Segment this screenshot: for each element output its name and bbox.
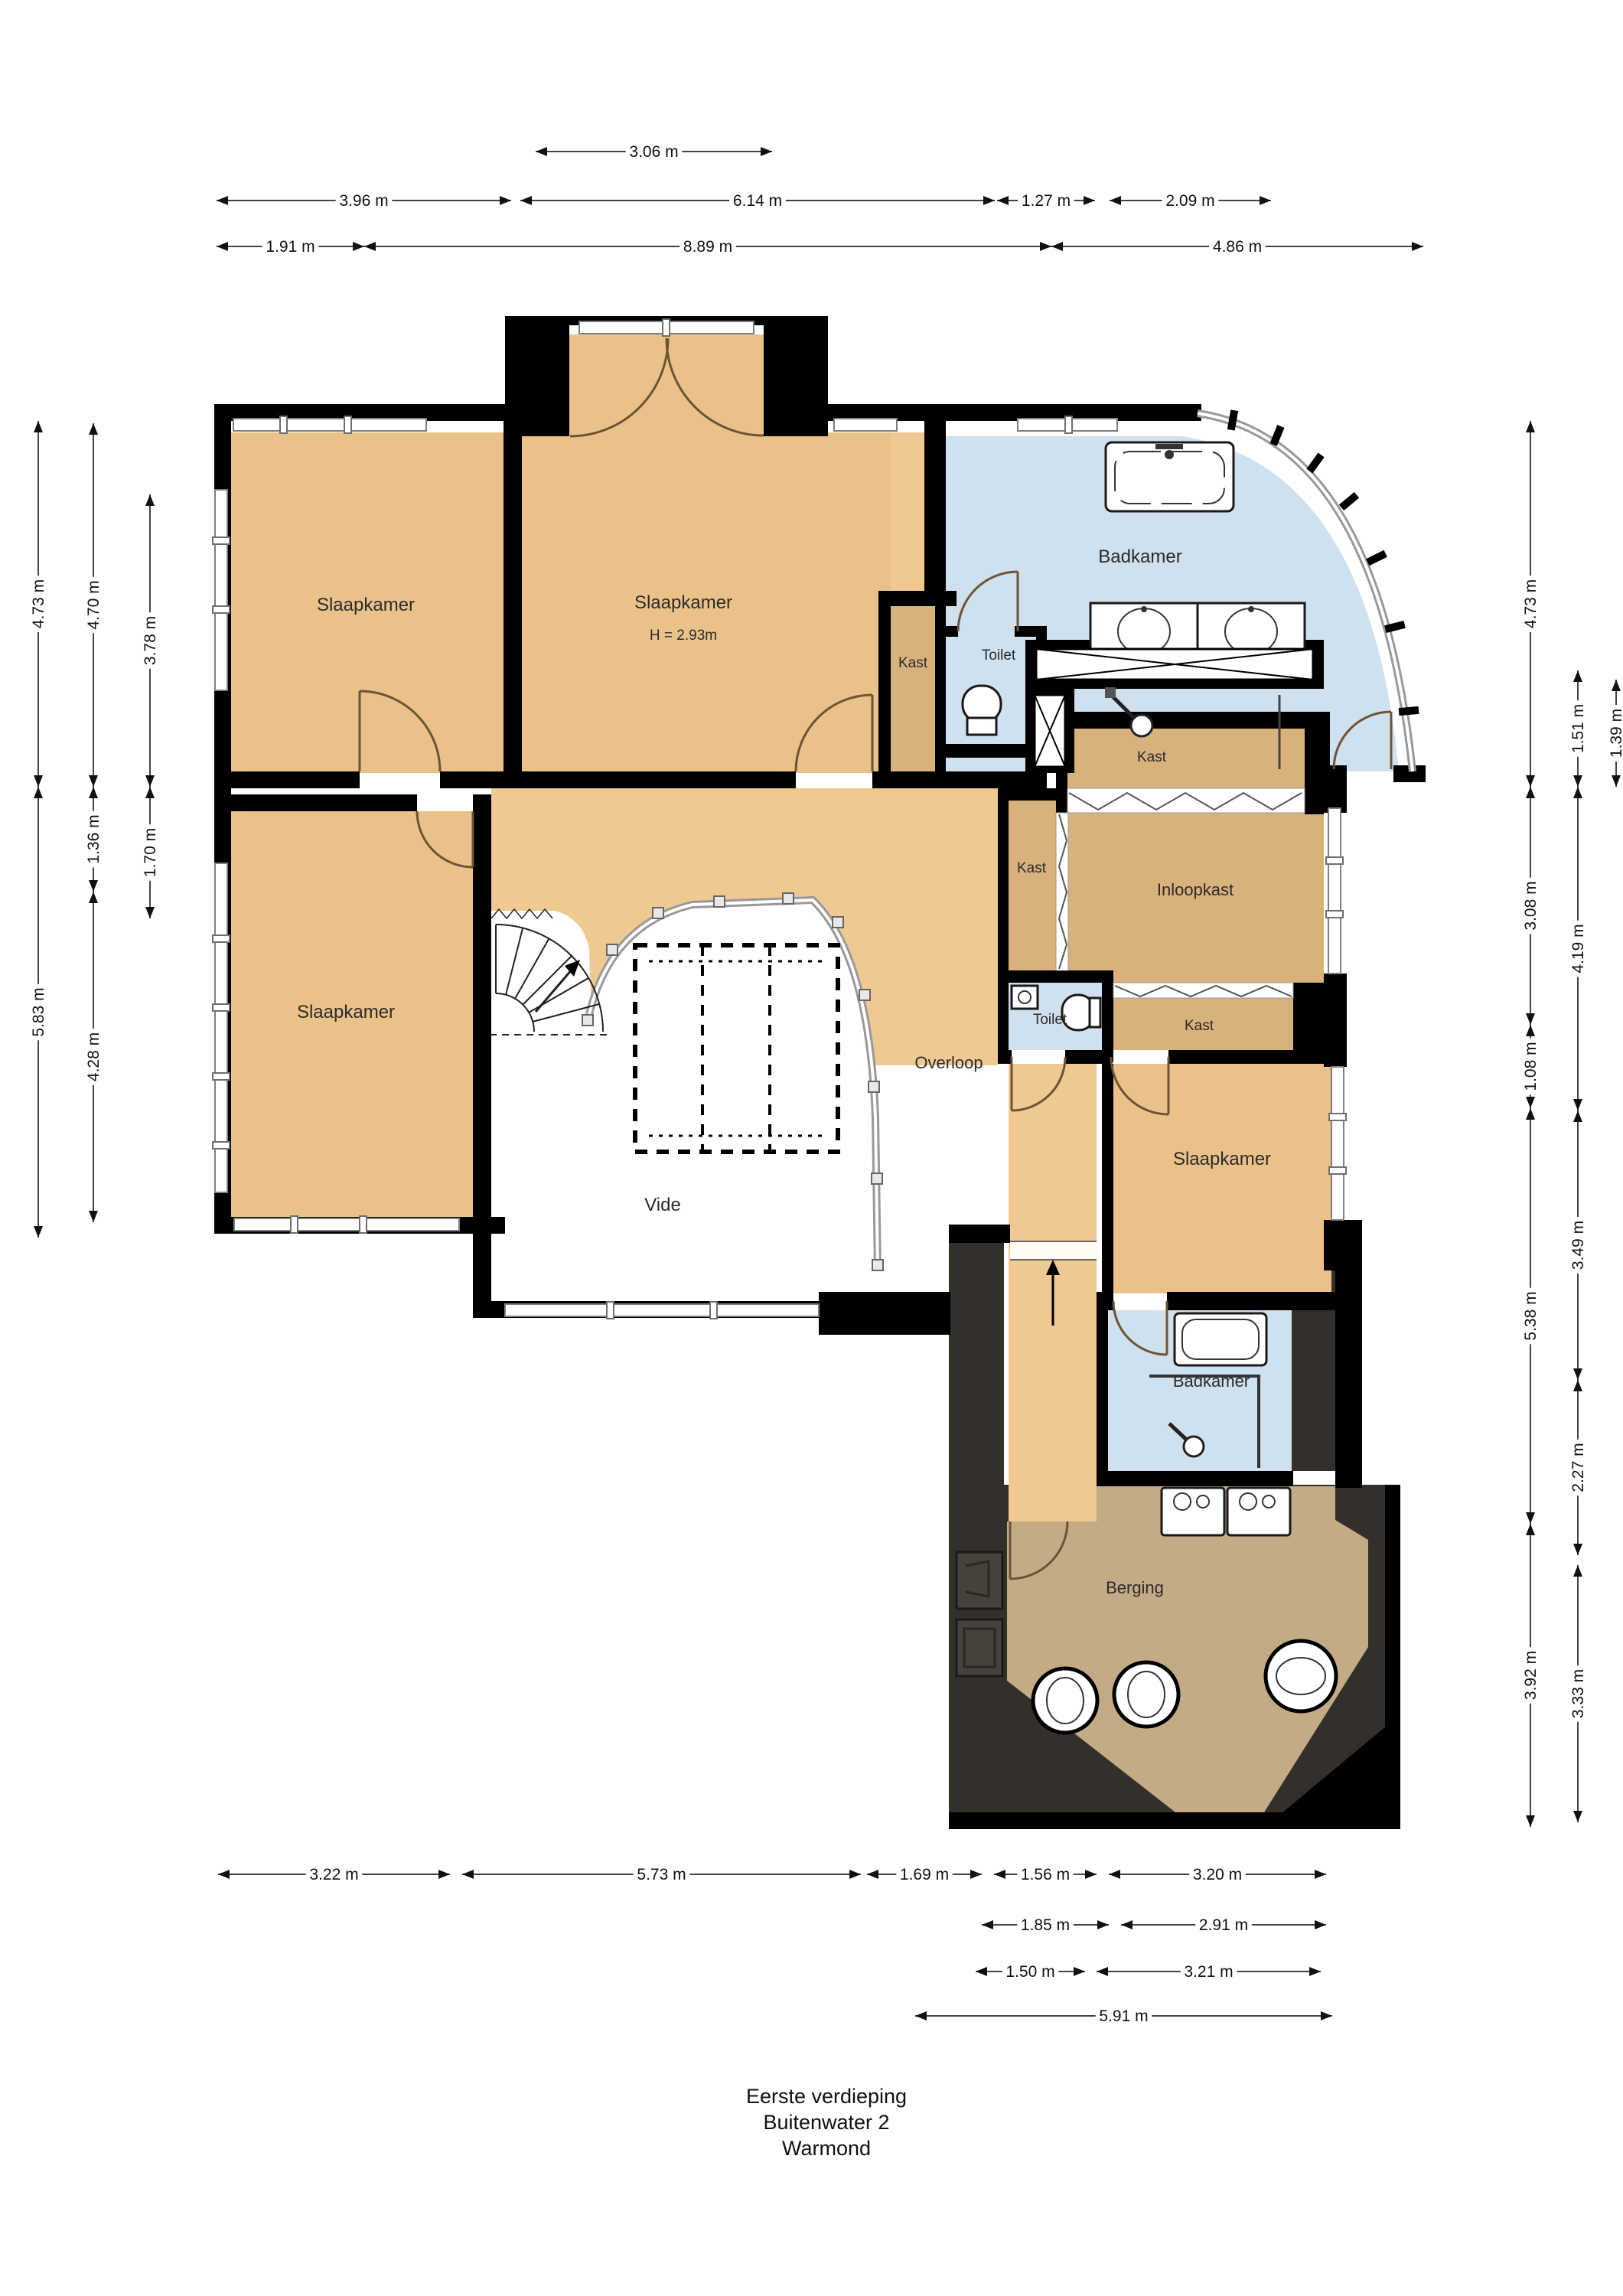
dimension-label: 5.83 m <box>30 987 47 1036</box>
dimension-label: 1.50 m <box>1005 1963 1054 1981</box>
dimension-label: 1.27 m <box>1022 192 1071 210</box>
dimension: 6.14 m <box>520 191 995 210</box>
dimension-label: 3.21 m <box>1184 1963 1233 1981</box>
dimension-label: 3.22 m <box>309 1866 358 1883</box>
dimension: 5.73 m <box>462 1864 861 1884</box>
dimension: 2.27 m <box>1568 1380 1588 1555</box>
room-label-slaapkamer-left: Slaapkamer <box>297 1002 395 1022</box>
dimension: 1.39 m <box>1606 680 1623 787</box>
floor-fills <box>230 334 1400 1829</box>
room-label-slaapkamer-top-middle: Slaapkamer <box>634 592 732 613</box>
dimension: 1.51 m <box>1568 670 1588 787</box>
dimension: 1.56 m <box>994 1864 1097 1884</box>
dimension: 4.19 m <box>1568 787 1588 1110</box>
title-city: Warmond <box>782 2137 871 2160</box>
dimension: 1.50 m <box>976 1962 1085 1981</box>
dimension: 1.08 m <box>1520 1025 1540 1108</box>
dimension-label: 4.73 m <box>30 579 47 628</box>
room-label-badkamer-top: Badkamer <box>1098 546 1181 567</box>
dimension-label: 3.20 m <box>1193 1866 1242 1883</box>
dimension: 3.06 m <box>536 142 772 161</box>
bathtub-lower <box>1175 1313 1266 1365</box>
dimension-label: 2.91 m <box>1199 1916 1248 1934</box>
dimension-label: 5.73 m <box>637 1866 686 1883</box>
dimension-label: 3.78 m <box>142 616 159 665</box>
dimension: 3.96 m <box>217 191 511 210</box>
dimension: 4.73 m <box>28 421 48 787</box>
dimension-label: 3.33 m <box>1569 1669 1587 1718</box>
floor-plan-page: Slaapkamer Slaapkamer H = 2.93m Kast Toi… <box>0 0 1623 2296</box>
room-label-vide: Vide <box>644 1195 681 1215</box>
dimension-label: 1.85 m <box>1021 1916 1070 1934</box>
dimension-label: 6.14 m <box>733 192 782 210</box>
dimension: 5.91 m <box>915 2006 1332 2026</box>
dimension-label: 5.38 m <box>1522 1291 1540 1340</box>
dimension: 3.22 m <box>218 1864 450 1884</box>
dimension: 3.20 m <box>1109 1864 1326 1884</box>
room-label-kast-above-inloopkast: Kast <box>1137 749 1167 765</box>
dimension: 4.28 m <box>83 892 103 1222</box>
dimension: 2.09 m <box>1110 191 1271 210</box>
room-label-inloopkast: Inloopkast <box>1157 880 1234 899</box>
dimension: 1.85 m <box>982 1915 1109 1935</box>
dimension: 1.91 m <box>217 236 364 256</box>
dimension: 3.33 m <box>1568 1565 1588 1822</box>
title-floor: Eerste verdieping <box>746 2085 907 2108</box>
dimension: 1.69 m <box>867 1864 982 1884</box>
room-label-toilet-top: Toilet <box>982 647 1016 664</box>
room-label-berging: Berging <box>1106 1578 1164 1597</box>
dimension-label: 3.49 m <box>1569 1221 1587 1270</box>
bathtub-top <box>1106 442 1234 511</box>
dimension: 4.86 m <box>1051 236 1423 256</box>
title-block: Eerste verdieping Buitenwater 2 Warmond <box>746 2085 907 2160</box>
dimension: 3.21 m <box>1097 1962 1321 1981</box>
room-label-overloop: Overloop <box>914 1053 983 1072</box>
dimension: 3.78 m <box>140 494 160 787</box>
title-address: Buitenwater 2 <box>763 2111 889 2134</box>
dimension-label: 4.70 m <box>85 580 103 629</box>
dimension-label: 4.19 m <box>1569 924 1587 973</box>
dimension: 4.73 m <box>1520 421 1540 787</box>
dimension-label: 1.36 m <box>85 814 103 863</box>
dimension: 1.36 m <box>83 787 103 892</box>
dimension-label: 2.09 m <box>1165 192 1214 210</box>
dimension-label: 1.51 m <box>1569 704 1587 753</box>
dimension: 5.83 m <box>28 787 48 1238</box>
dimension-label: 1.69 m <box>900 1866 949 1883</box>
dimension: 8.89 m <box>364 236 1051 256</box>
dimension-label: 3.08 m <box>1522 881 1540 930</box>
room-label-toilet-middle: Toilet <box>1033 1012 1067 1028</box>
dimension-label: 4.86 m <box>1213 238 1262 256</box>
dimension-label: 3.92 m <box>1522 1651 1540 1700</box>
dimension: 4.70 m <box>83 423 103 787</box>
dimension: 3.49 m <box>1568 1110 1588 1380</box>
dimension-label: 2.27 m <box>1569 1443 1587 1492</box>
room-label-slaapkamer-top-left: Slaapkamer <box>317 595 415 615</box>
dimension: 3.92 m <box>1520 1524 1540 1827</box>
dimension-label: 1.70 m <box>142 828 159 877</box>
dimension-label: 1.39 m <box>1608 709 1623 758</box>
dimension-label: 3.06 m <box>629 143 678 161</box>
room-label-kast-top: Kast <box>898 655 928 671</box>
dimension-label: 1.91 m <box>266 238 314 256</box>
dimension: 3.08 m <box>1520 787 1540 1025</box>
toilet-top-fixture <box>963 686 1001 735</box>
room-label-slaapkamer-right: Slaapkamer <box>1173 1149 1271 1169</box>
dimension: 1.27 m <box>997 191 1095 210</box>
floor-plan-drawing: Slaapkamer Slaapkamer H = 2.93m Kast Toi… <box>0 0 1623 2296</box>
dimension: 5.38 m <box>1520 1108 1540 1524</box>
room-height-note: H = 2.93m <box>650 628 717 644</box>
dimension-label: 5.91 m <box>1099 2007 1148 2025</box>
room-label-kast-tall: Kast <box>1017 860 1047 876</box>
dimension-label: 3.96 m <box>339 192 388 210</box>
dimension-label: 8.89 m <box>683 238 732 256</box>
dimension-label: 1.56 m <box>1021 1866 1070 1883</box>
dimension-label: 1.08 m <box>1522 1042 1540 1091</box>
dimension: 2.91 m <box>1121 1915 1326 1935</box>
dimension: 1.70 m <box>140 787 160 918</box>
dimension-label: 4.73 m <box>1522 579 1540 628</box>
room-label-badkamer-lower: Badkamer <box>1173 1371 1250 1391</box>
dimension-label: 4.28 m <box>85 1032 103 1081</box>
room-label-kast-below-inloopkast: Kast <box>1185 1018 1214 1034</box>
